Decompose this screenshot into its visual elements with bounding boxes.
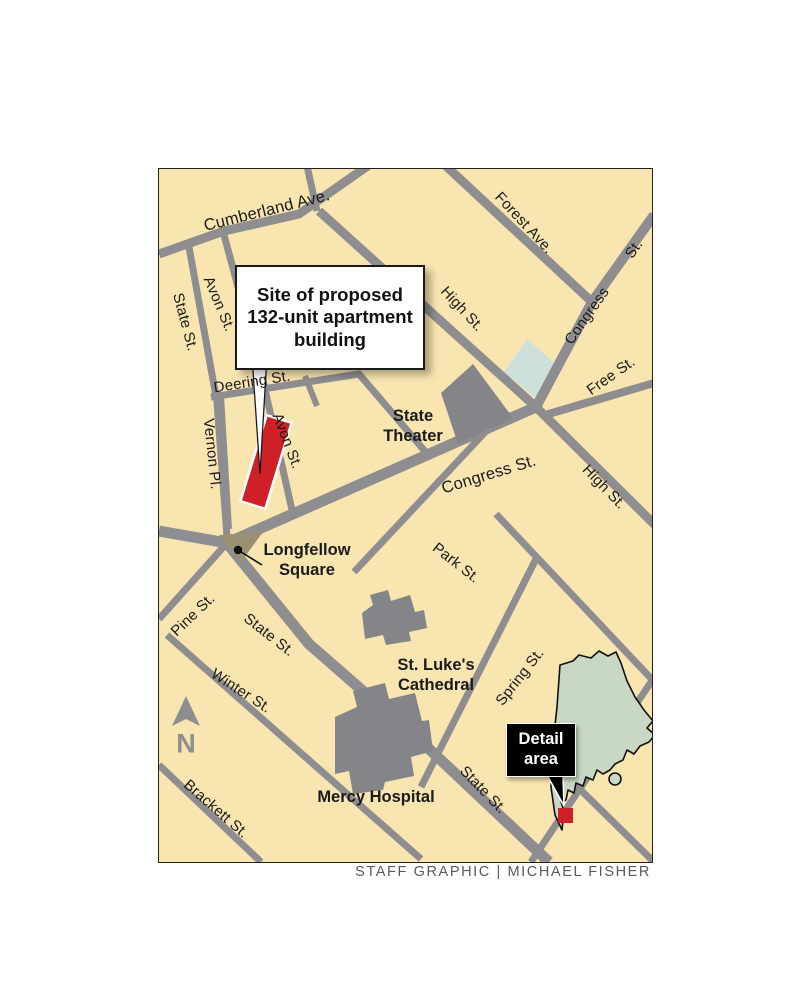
longfellow-dot	[234, 546, 242, 554]
building-mercy-hospital	[335, 683, 433, 794]
landmark-label-state-theater: State Theater	[383, 406, 443, 446]
building-st-lukes	[362, 590, 427, 645]
landmark-label-line: Cathedral	[397, 675, 474, 695]
callout-line: 132-unit apartment	[247, 306, 413, 329]
landmark-label-line: Square	[263, 560, 350, 580]
map-panel: Cumberland Ave. Forest Ave. Congress St.…	[158, 168, 653, 863]
site-callout: Site of proposed 132-unit apartment buil…	[235, 265, 425, 370]
landmark-label-mercy: Mercy Hospital	[317, 787, 434, 807]
landmark-label-longfellow: Longfellow Square	[263, 540, 350, 580]
credit-line: STAFF GRAPHIC | MICHAEL FISHER	[355, 864, 651, 880]
north-letter: N	[176, 729, 196, 760]
landmark-label-line: Longfellow	[263, 540, 350, 560]
road-forest-ave	[446, 169, 592, 302]
landmark-label-line: Mercy Hospital	[317, 787, 434, 807]
staff-graphic-page: Cumberland Ave. Forest Ave. Congress St.…	[0, 0, 808, 999]
detail-area-line: area	[524, 750, 558, 770]
maine-island	[609, 773, 621, 785]
detail-area-line: Detail	[519, 730, 564, 750]
landmark-label-line: State	[383, 406, 443, 426]
north-arrow-icon	[172, 696, 200, 726]
callout-line: Site of proposed	[257, 284, 403, 307]
landmark-label-st-lukes: St. Luke's Cathedral	[397, 655, 474, 695]
detail-area-label: Detail area	[506, 723, 576, 777]
callout-line: building	[294, 329, 366, 352]
landmark-label-line: Theater	[383, 426, 443, 446]
inset-detail-square	[558, 808, 573, 823]
landmark-label-line: St. Luke's	[397, 655, 474, 675]
